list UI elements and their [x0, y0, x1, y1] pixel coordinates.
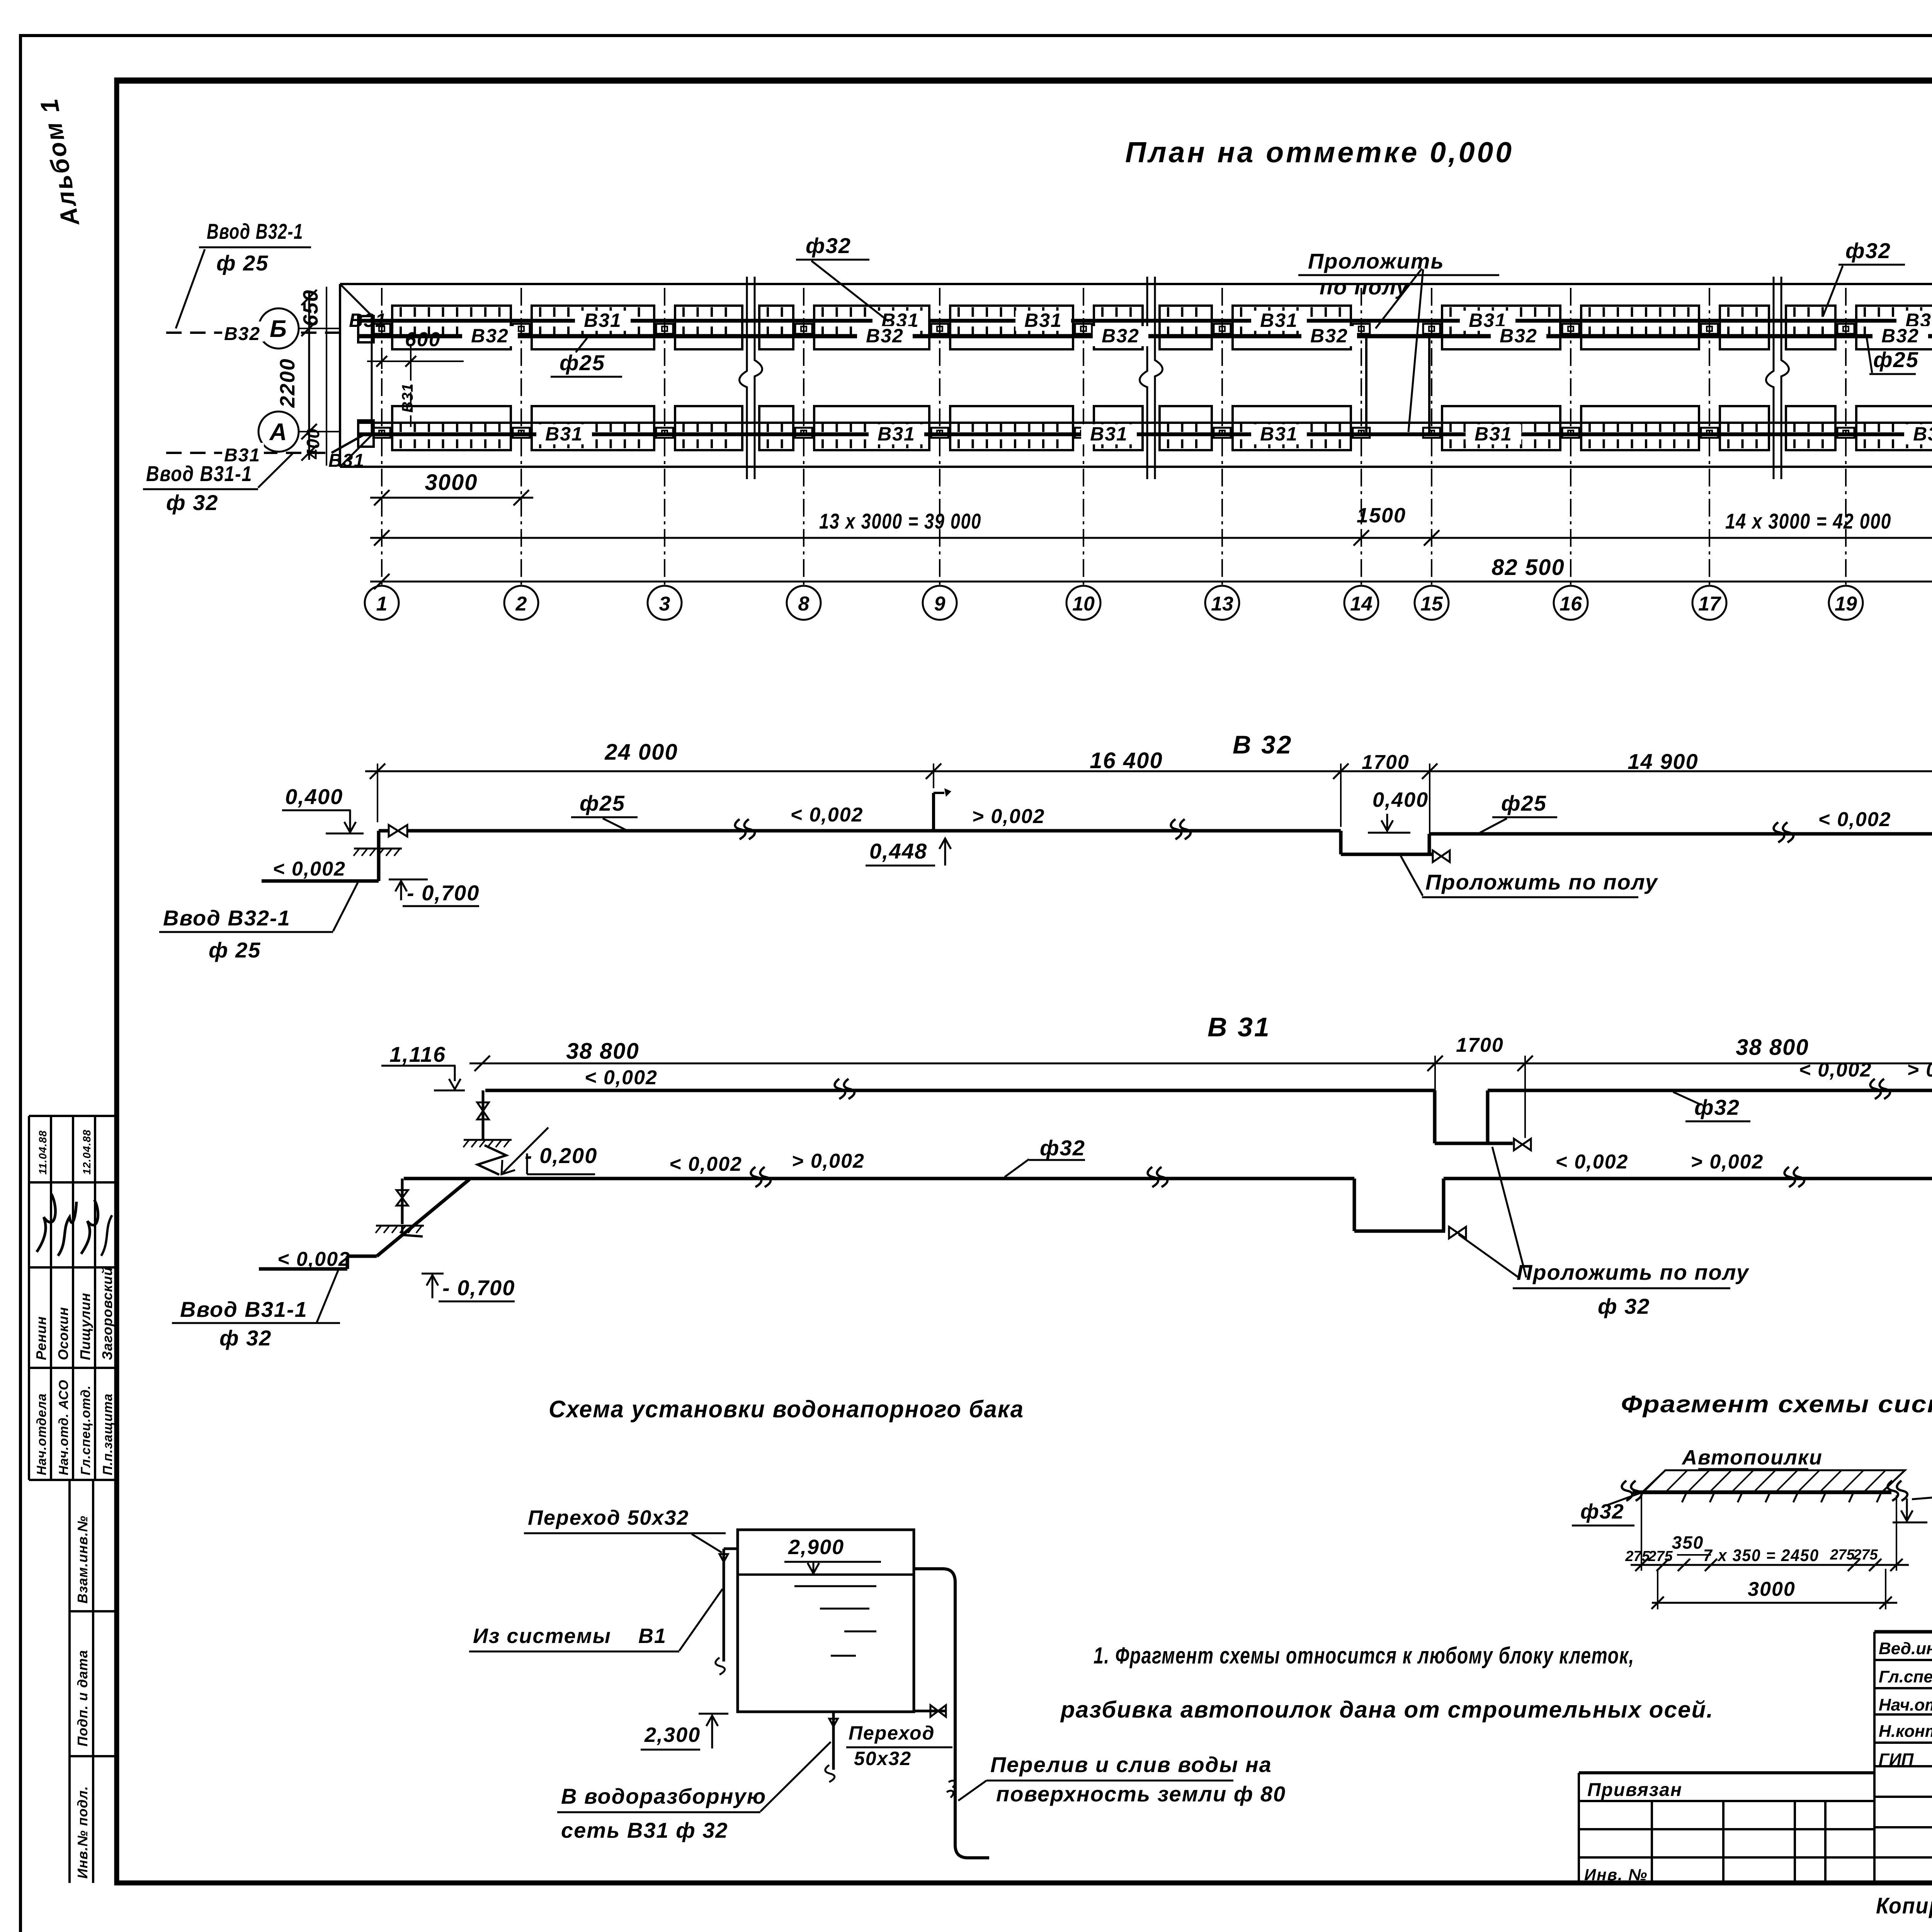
svg-text:13: 13 — [1211, 593, 1233, 615]
svg-text:> 0,002: > 0,002 — [972, 805, 1045, 828]
svg-text:38 800: 38 800 — [566, 1039, 639, 1064]
svg-text:50х32: 50х32 — [854, 1748, 912, 1769]
svg-text:ф25: ф25 — [560, 350, 605, 375]
svg-text:Ввод В32-1: Ввод В32-1 — [207, 219, 303, 243]
svg-text:В31: В31 — [1260, 310, 1298, 331]
svg-text:ГИП: ГИП — [1879, 1750, 1914, 1769]
svg-text:Взам.инв.№: Взам.инв.№ — [75, 1515, 90, 1604]
svg-text:Нач.отд.: Нач.отд. — [1879, 1696, 1932, 1714]
svg-text:8: 8 — [798, 593, 810, 615]
svg-text:- 0,700: - 0,700 — [407, 881, 480, 905]
svg-text:Проложить по полу: Проложить по полу — [1517, 1260, 1750, 1284]
svg-text:Н.контр.: Н.контр. — [1879, 1722, 1932, 1741]
svg-text:В31: В31 — [1090, 423, 1128, 445]
svg-text:Автопоилки: Автопоилки — [1681, 1446, 1823, 1469]
svg-text:275: 275 — [1625, 1548, 1650, 1565]
svg-text:14: 14 — [1350, 593, 1372, 615]
svg-text:ф25: ф25 — [580, 791, 625, 815]
svg-text:План на отметке 0,000: План на отметке 0,000 — [1125, 136, 1514, 168]
svg-text:14 x 3000 = 42 000: 14 x 3000 = 42 000 — [1725, 509, 1891, 533]
svg-text:3000: 3000 — [425, 470, 478, 495]
svg-text:Вед.инж.: Вед.инж. — [1879, 1639, 1932, 1658]
svg-text:ф25: ф25 — [1501, 791, 1547, 815]
svg-text:В 31: В 31 — [1207, 1012, 1271, 1042]
svg-text:В32: В32 — [1102, 325, 1139, 347]
svg-text:Привязан: Привязан — [1587, 1780, 1682, 1800]
svg-text:Инв.№ подл.: Инв.№ подл. — [75, 1786, 90, 1879]
svg-text:В31: В31 — [584, 310, 622, 331]
svg-text:15: 15 — [1420, 593, 1443, 615]
svg-text:350: 350 — [1672, 1532, 1704, 1553]
svg-text:1500: 1500 — [1357, 504, 1406, 527]
svg-text:Нач.отд. АСО: Нач.отд. АСО — [56, 1379, 71, 1475]
svg-text:ф 25: ф 25 — [209, 938, 261, 962]
svg-text:Перелив и слив воды на: Перелив и слив воды на — [990, 1752, 1272, 1777]
svg-text:7 х 350 = 2450: 7 х 350 = 2450 — [1703, 1546, 1819, 1565]
svg-text:В31: В31 — [1475, 423, 1512, 445]
svg-text:ф 32: ф 32 — [219, 1326, 272, 1350]
svg-text:В31: В31 — [349, 310, 387, 331]
svg-text:В31: В31 — [1913, 423, 1932, 445]
svg-text:2: 2 — [515, 593, 527, 615]
svg-text:Альбом 1: Альбом 1 — [35, 95, 85, 229]
svg-text:ф32: ф32 — [1845, 238, 1891, 263]
svg-text:сеть В31 ф 32: сеть В31 ф 32 — [561, 1818, 728, 1842]
svg-text:Подп. и дата: Подп. и дата — [75, 1650, 90, 1747]
svg-text:Переход 50х32: Переход 50х32 — [528, 1506, 689, 1529]
svg-text:24 000: 24 000 — [604, 740, 678, 765]
svg-text:275: 275 — [1853, 1547, 1878, 1563]
svg-text:В31: В31 — [545, 423, 583, 445]
svg-text:16 400: 16 400 — [1090, 748, 1163, 773]
svg-text:В1: В1 — [638, 1624, 667, 1648]
svg-text:2,900: 2,900 — [788, 1536, 844, 1559]
svg-text:- 0,700: - 0,700 — [442, 1276, 515, 1300]
svg-text:1700: 1700 — [1456, 1034, 1504, 1056]
svg-text:Копировал Трофимова: Копировал Трофимова — [1876, 1893, 1932, 1918]
svg-text:ф 32: ф 32 — [166, 490, 218, 515]
svg-text:В31: В31 — [1260, 423, 1298, 445]
svg-text:Схема установки водонапорного: Схема установки водонапорного бака — [549, 1396, 1024, 1423]
svg-text:В32: В32 — [1310, 325, 1348, 347]
svg-text:38 800: 38 800 — [1736, 1035, 1809, 1060]
svg-text:Инв. №: Инв. № — [1584, 1866, 1648, 1884]
svg-text:Загоровский: Загоровский — [99, 1267, 115, 1360]
svg-text:поверхность земли ф 80: поверхность земли ф 80 — [996, 1782, 1286, 1806]
svg-text:В водоразборную: В водоразборную — [561, 1784, 766, 1808]
svg-text:0,448: 0,448 — [869, 839, 927, 863]
svg-text:ф32: ф32 — [1694, 1095, 1740, 1119]
svg-text:ф32: ф32 — [1580, 1500, 1624, 1523]
svg-text:по полу: по полу — [1320, 275, 1409, 299]
svg-text:Ренин: Ренин — [33, 1316, 49, 1360]
svg-text:12.04.88: 12.04.88 — [81, 1129, 93, 1175]
svg-text:Ввод В32-1: Ввод В32-1 — [163, 906, 291, 930]
svg-text:В32: В32 — [471, 325, 509, 347]
svg-text:275: 275 — [1648, 1548, 1673, 1565]
svg-text:< 0,002: < 0,002 — [273, 858, 346, 880]
svg-text:> 0,002: > 0,002 — [1907, 1059, 1932, 1081]
svg-text:0,400: 0,400 — [285, 784, 343, 809]
svg-text:650: 650 — [299, 289, 322, 327]
svg-text:В32: В32 — [1500, 325, 1537, 347]
svg-text:Б: Б — [270, 316, 287, 342]
svg-text:14 900: 14 900 — [1628, 749, 1698, 774]
svg-text:В32: В32 — [224, 324, 260, 344]
svg-text:В31: В31 — [399, 383, 416, 413]
svg-text:Из системы: Из системы — [473, 1624, 611, 1648]
svg-text:П.п.защита: П.п.защита — [100, 1393, 115, 1475]
svg-text:19: 19 — [1835, 593, 1857, 615]
svg-text:В32: В32 — [866, 325, 904, 347]
svg-text:Проложить по полу: Проложить по полу — [1425, 870, 1658, 894]
svg-text:400: 400 — [303, 428, 323, 459]
svg-text:10: 10 — [1072, 593, 1095, 615]
svg-text:82 500: 82 500 — [1492, 555, 1565, 580]
svg-text:11.04.88: 11.04.88 — [37, 1130, 49, 1175]
svg-text:Фрагмент схемы системы В31: Фрагмент схемы системы В31 — [1621, 1391, 1932, 1418]
svg-text:9: 9 — [934, 593, 946, 615]
svg-text:ф25: ф25 — [1873, 347, 1919, 372]
svg-text:В31: В31 — [878, 423, 915, 445]
svg-text:Осокин: Осокин — [55, 1307, 71, 1360]
svg-text:Ввод В31-1: Ввод В31-1 — [146, 461, 252, 486]
svg-text:1. Фрагмент схемы относится: 1. Фрагмент схемы относится к любому бло… — [1094, 1643, 1634, 1668]
svg-text:17: 17 — [1698, 593, 1721, 615]
svg-text:< 0,002: < 0,002 — [1556, 1151, 1629, 1173]
svg-text:13 x 3000 = 39 000: 13 x 3000 = 39 000 — [819, 509, 981, 533]
svg-text:275: 275 — [1830, 1547, 1855, 1563]
svg-text:В31: В31 — [1024, 310, 1062, 331]
svg-text:2,300: 2,300 — [644, 1723, 701, 1747]
svg-text:Нач.отдела: Нач.отдела — [34, 1393, 49, 1475]
svg-text:Гл.спец.отд.: Гл.спец.отд. — [78, 1385, 93, 1475]
svg-text:1: 1 — [376, 593, 388, 615]
svg-text:< 0,002: < 0,002 — [585, 1066, 658, 1089]
svg-text:В32: В32 — [1881, 325, 1919, 347]
svg-text:> 0,002: > 0,002 — [1691, 1151, 1764, 1173]
svg-text:В 32: В 32 — [1233, 730, 1293, 759]
svg-text:600: 600 — [405, 328, 441, 351]
svg-text:Гл.спец.: Гл.спец. — [1879, 1667, 1932, 1686]
svg-text:ф 32: ф 32 — [1598, 1294, 1650, 1318]
svg-text:3: 3 — [659, 593, 670, 615]
svg-text:< 0,002: < 0,002 — [1818, 808, 1891, 831]
svg-text:16: 16 — [1560, 593, 1582, 615]
svg-text:Ввод В31-1: Ввод В31-1 — [180, 1297, 308, 1321]
svg-text:< 0,002: < 0,002 — [791, 804, 864, 826]
svg-text:0,400: 0,400 — [1372, 788, 1429, 811]
svg-text:ф32: ф32 — [1040, 1136, 1085, 1160]
svg-text:- 0,200: - 0,200 — [525, 1143, 597, 1168]
svg-text:В31: В31 — [328, 451, 365, 471]
svg-text:< 0,002: < 0,002 — [277, 1248, 350, 1270]
svg-text:ф32: ф32 — [806, 233, 851, 258]
svg-text:Пищулин: Пищулин — [77, 1293, 93, 1360]
svg-text:> 0,002: > 0,002 — [792, 1150, 865, 1172]
svg-text:А: А — [269, 419, 288, 446]
svg-text:< 0,002: < 0,002 — [669, 1153, 742, 1175]
svg-text:разбивка автопоилок дана от: разбивка автопоилок дана от строительных… — [1060, 1697, 1714, 1723]
svg-text:ф 25: ф 25 — [216, 251, 269, 275]
svg-text:1,116: 1,116 — [389, 1042, 446, 1066]
svg-text:< 0,002: < 0,002 — [1799, 1059, 1872, 1081]
svg-text:2200: 2200 — [276, 358, 299, 408]
svg-text:3000: 3000 — [1748, 1578, 1796, 1600]
svg-text:1700: 1700 — [1362, 751, 1410, 774]
svg-text:Переход: Переход — [849, 1722, 935, 1744]
